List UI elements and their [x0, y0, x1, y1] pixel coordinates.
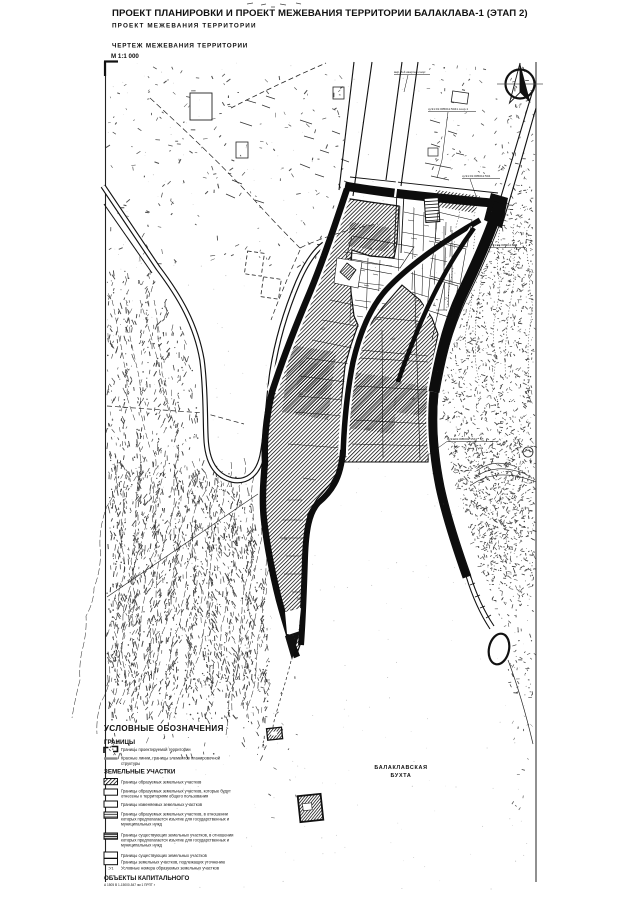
svg-text::43: :43: [298, 392, 303, 396]
svg-text::51: :51: [283, 537, 288, 541]
svg-text:зу.91:01:005011:5041 соор.1: зу.91:01:005011:5041 соор.1: [428, 107, 468, 111]
svg-text:зу.91:01:005002:1541: зу.91:01:005002:1541: [447, 437, 477, 441]
svg-text::41: :41: [368, 247, 373, 251]
svg-text::46: :46: [365, 427, 370, 431]
svg-text::44: :44: [390, 337, 395, 341]
svg-text:ПРОЕКТ МЕЖЕВАНИЯ ТЕРРИТОРИИ: ПРОЕКТ МЕЖЕВАНИЯ ТЕРРИТОРИИ: [112, 23, 257, 30]
svg-text::7: :7: [444, 297, 447, 301]
svg-text:мкр. 6-й квартал соор.: мкр. 6-й квартал соор.: [394, 70, 426, 74]
svg-text:зу.91:01:005011:504: зу.91:01:005011:504: [462, 174, 490, 178]
svg-text::52: :52: [296, 597, 301, 601]
svg-text::45: :45: [410, 397, 415, 401]
svg-text:М 1:1 000: М 1:1 000: [111, 53, 139, 60]
svg-text:ЧЕРТЕЖ МЕЖЕВАНИЯ ТЕРРИТОРИИ: ЧЕРТЕЖ МЕЖЕВАНИЯ ТЕРРИТОРИИ: [112, 43, 248, 50]
svg-text::3: :3: [452, 255, 455, 259]
svg-text:ПРОЕКТ ПЛАНИРОВКИ И ПРОЕКТ МЕЖ: ПРОЕКТ ПЛАНИРОВКИ И ПРОЕКТ МЕЖЕВАНИЯ ТЕР…: [112, 8, 528, 19]
svg-text::42: :42: [320, 327, 325, 331]
